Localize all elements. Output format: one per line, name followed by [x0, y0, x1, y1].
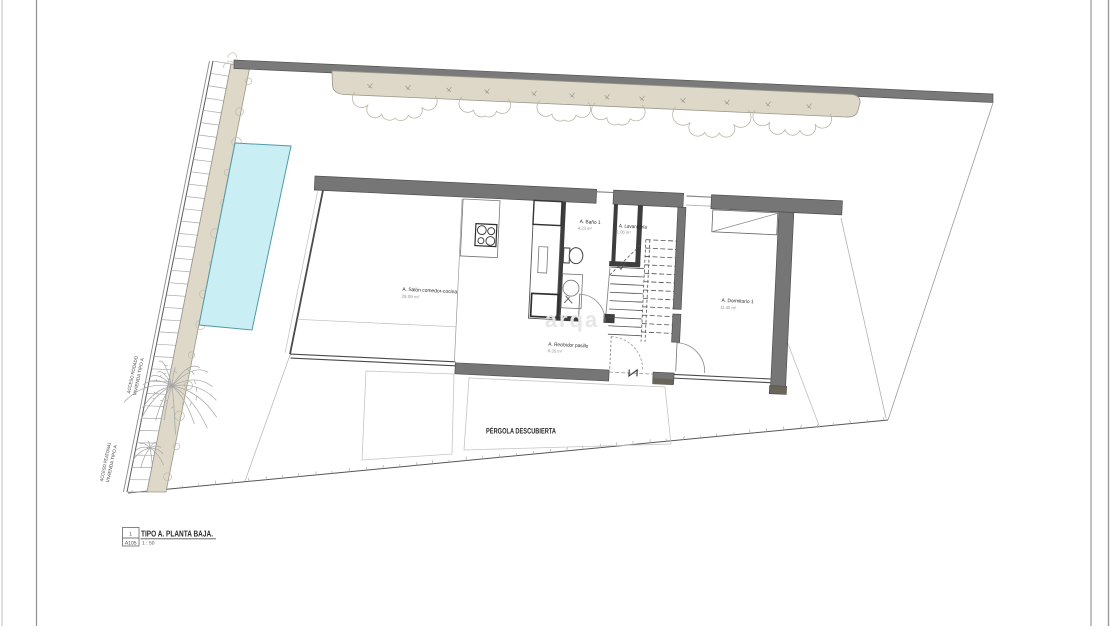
svg-text:29.09 m²: 29.09 m² — [401, 294, 420, 300]
svg-text:PÉRGOLA DESCUBIERTA: PÉRGOLA DESCUBIERTA — [486, 427, 556, 436]
svg-text:1: 1 — [129, 532, 132, 538]
svg-text:A105: A105 — [125, 541, 137, 547]
svg-text:8.35 m²: 8.35 m² — [548, 348, 563, 354]
svg-text:1 : 50: 1 : 50 — [142, 541, 155, 547]
svg-text:arqa: arqa — [545, 307, 599, 332]
svg-text:TIPO A. PLANTA BAJA.: TIPO A. PLANTA BAJA. — [141, 529, 213, 539]
svg-text:1.06 m²: 1.06 m² — [617, 229, 632, 235]
svg-text:11.40 m²: 11.40 m² — [720, 305, 737, 311]
svg-text:4.23 m²: 4.23 m² — [578, 225, 593, 231]
